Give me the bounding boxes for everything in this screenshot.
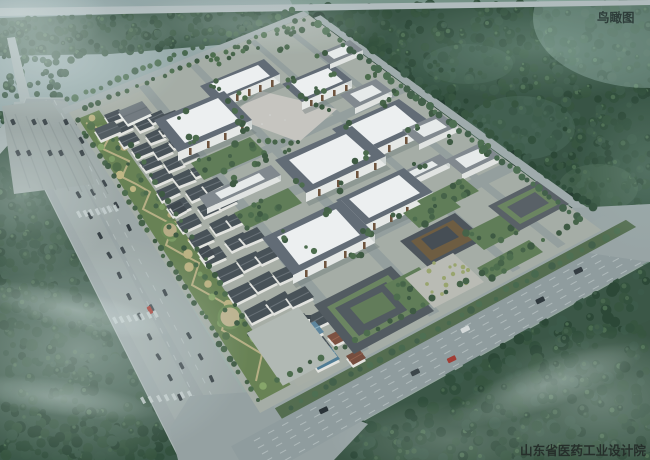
- svg-text:山东省医药工业设计院: 山东省医药工业设计院: [520, 443, 646, 458]
- svg-text:鸟瞰图: 鸟瞰图: [597, 10, 635, 25]
